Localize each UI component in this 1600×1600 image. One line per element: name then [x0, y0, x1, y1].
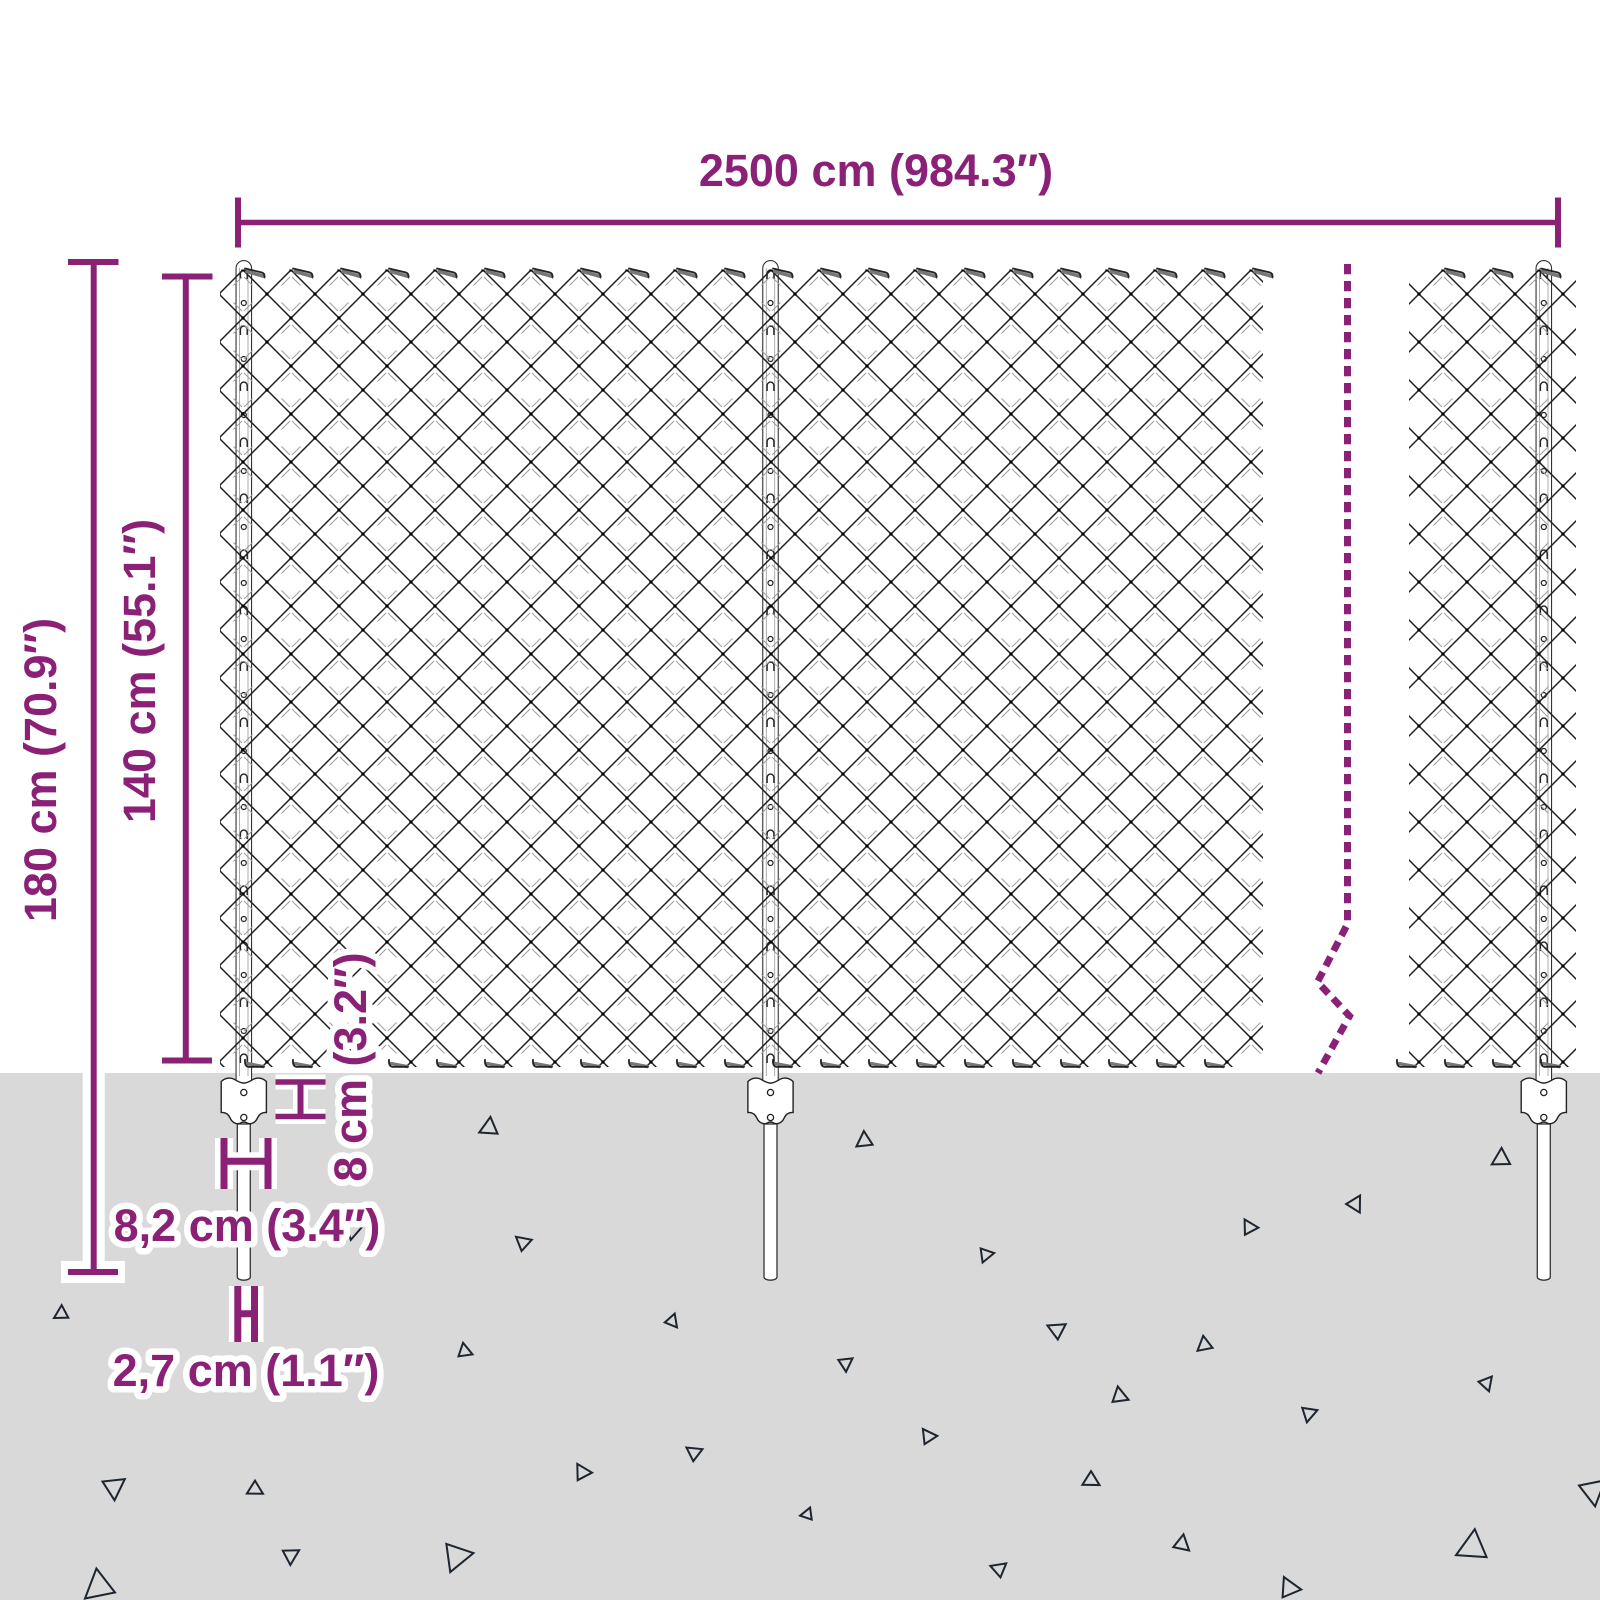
svg-text:8,2 cm (3.4″): 8,2 cm (3.4″): [114, 1200, 381, 1251]
svg-text:8 cm (3.2″): 8 cm (3.2″): [325, 952, 376, 1181]
svg-text:2,7 cm (1.1″): 2,7 cm (1.1″): [113, 1345, 380, 1396]
svg-text:140 cm (55.1″): 140 cm (55.1″): [114, 519, 165, 823]
svg-text:180 cm (70.9″): 180 cm (70.9″): [15, 618, 66, 922]
svg-text:2500 cm (984.3″): 2500 cm (984.3″): [699, 145, 1053, 196]
